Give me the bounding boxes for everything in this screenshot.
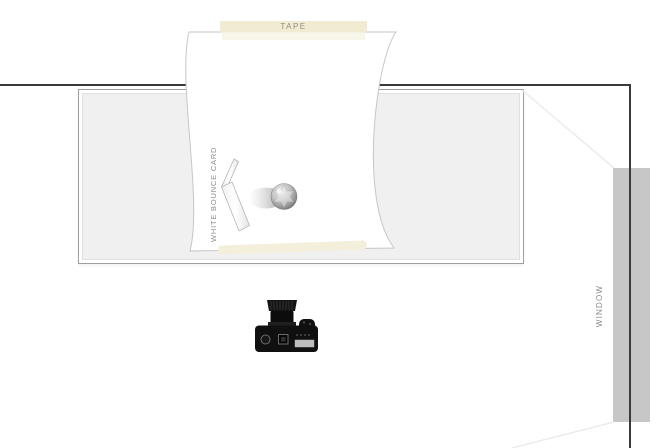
lighting-diagram: TAPE WHITE BOUNCE CARD WINDOW bbox=[0, 0, 667, 448]
tape-strip-top-overlap bbox=[222, 32, 365, 40]
diagram-shapes bbox=[0, 0, 667, 448]
camera bbox=[255, 300, 318, 352]
window-label: WINDOW bbox=[595, 276, 605, 336]
window-light-ray-upper bbox=[522, 90, 614, 168]
tape-strip-top: TAPE bbox=[220, 21, 367, 32]
subject bbox=[271, 184, 297, 210]
tape-label: TAPE bbox=[280, 22, 306, 31]
window-light-ray-lower bbox=[512, 422, 614, 448]
camera-mode-dial bbox=[261, 335, 270, 344]
camera-lcd-panel bbox=[295, 340, 315, 348]
bounce-card-label: WHITE BOUNCE CARD bbox=[209, 152, 219, 242]
subject-highlight bbox=[277, 189, 281, 193]
